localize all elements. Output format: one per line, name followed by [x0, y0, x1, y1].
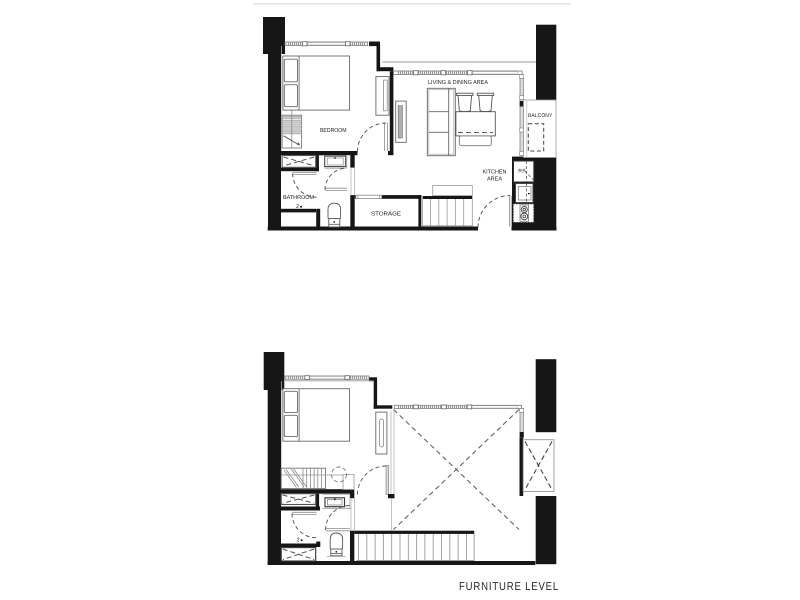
svg-text:KITCHEN: KITCHEN	[483, 168, 507, 175]
svg-text:FURNITURE LEVEL: FURNITURE LEVEL	[459, 581, 559, 593]
svg-text:BEDROOM: BEDROOM	[320, 127, 347, 134]
svg-text:LIVING & DINING AREA: LIVING & DINING AREA	[428, 79, 488, 86]
svg-text:BATHROOM: BATHROOM	[283, 195, 314, 201]
svg-text:AREA: AREA	[487, 177, 502, 183]
svg-text:2: 2	[296, 204, 299, 210]
svg-text:2: 2	[296, 538, 299, 544]
svg-text:BALCONY: BALCONY	[528, 113, 553, 119]
svg-text:STORAGE: STORAGE	[371, 211, 401, 218]
svg-text:RF: RF	[518, 169, 526, 175]
